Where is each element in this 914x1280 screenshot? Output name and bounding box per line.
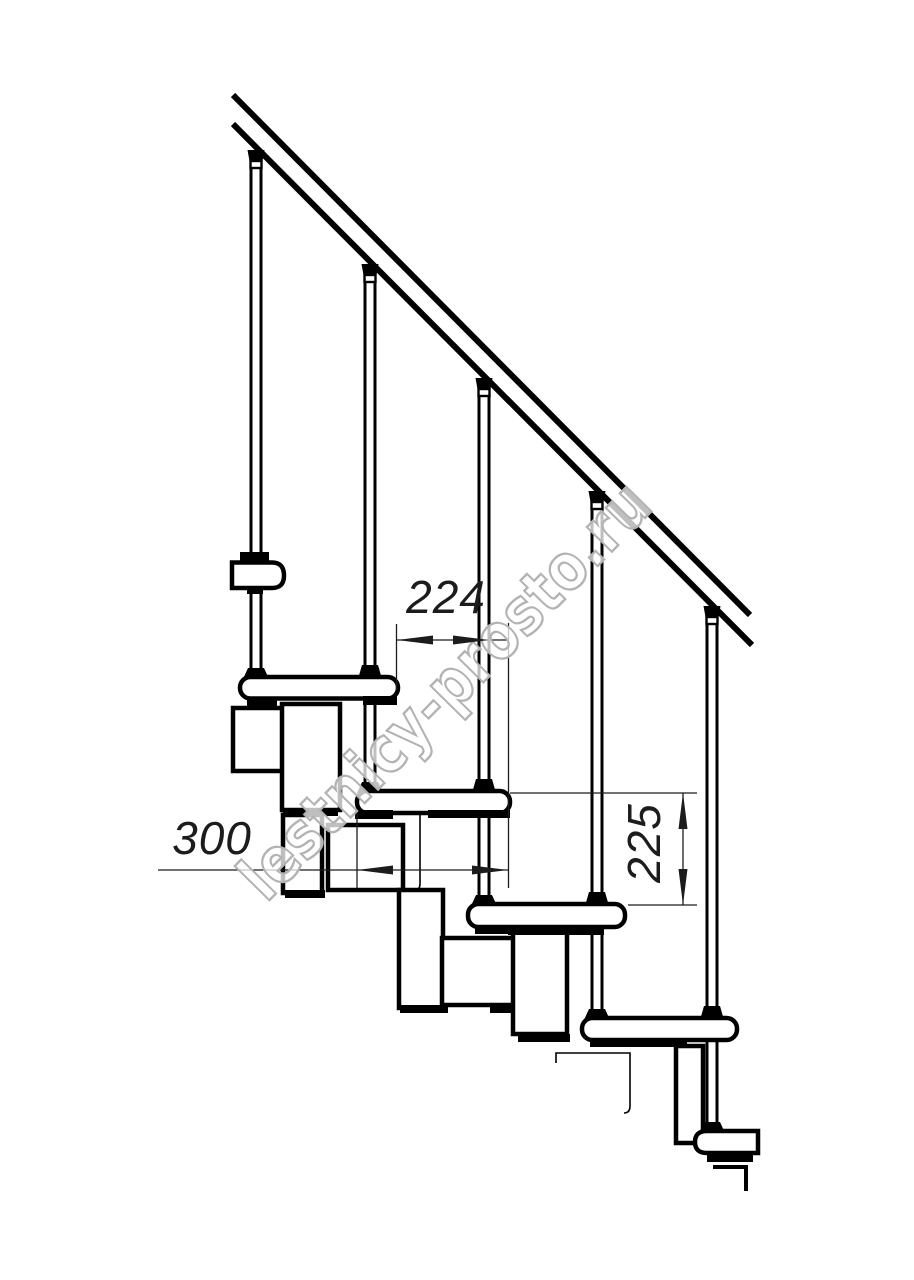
spine-module xyxy=(399,890,443,1008)
dim-arrow-down xyxy=(679,869,688,905)
tread-end-view xyxy=(232,563,284,589)
flange xyxy=(472,779,496,793)
flange xyxy=(700,1006,724,1020)
pad xyxy=(247,697,277,706)
baluster xyxy=(704,606,721,1131)
flange xyxy=(584,1009,610,1020)
tread xyxy=(240,677,398,699)
flange xyxy=(243,668,269,679)
handrail-top-edge xyxy=(233,95,750,615)
dim-arrow-up xyxy=(679,793,688,829)
baluster-neck xyxy=(251,161,262,168)
pad xyxy=(508,927,604,935)
hidden-edge-line xyxy=(412,813,420,891)
tread-partial xyxy=(695,1131,758,1153)
spine-module xyxy=(442,938,518,1005)
handrail xyxy=(233,95,752,645)
baluster-neck xyxy=(479,389,490,396)
technical-drawing-canvas: lestnicy-prosto.ru 224 300 225 xyxy=(0,0,914,1280)
baluster-neck xyxy=(707,617,718,624)
flange xyxy=(471,895,497,906)
spine-module-partial xyxy=(713,1167,746,1191)
flange xyxy=(585,892,609,906)
tread xyxy=(468,904,625,927)
pad xyxy=(590,1038,687,1047)
spine-module xyxy=(676,1046,703,1143)
flange xyxy=(358,665,382,679)
baluster-neck xyxy=(365,275,376,282)
pad xyxy=(400,1005,448,1013)
pad xyxy=(247,588,263,594)
hidden-edge-line xyxy=(556,1053,630,1113)
spine-module xyxy=(513,927,567,1034)
pad xyxy=(707,1153,753,1162)
dimension-label-tread-depth: 300 xyxy=(172,812,252,864)
pad xyxy=(428,810,510,818)
baluster xyxy=(248,150,265,677)
dim-arrow-left xyxy=(397,636,433,645)
handrail-bottom-edge xyxy=(233,124,752,645)
pad xyxy=(490,1005,512,1013)
pad xyxy=(475,925,510,934)
tread xyxy=(582,1018,737,1040)
pad xyxy=(240,552,269,563)
dimension-label-riser-height: 225 xyxy=(618,803,670,884)
dimension-label-step-run: 224 xyxy=(405,571,486,623)
pad xyxy=(518,1034,570,1042)
staircase-drawing: lestnicy-prosto.ru 224 300 225 xyxy=(0,0,914,1280)
